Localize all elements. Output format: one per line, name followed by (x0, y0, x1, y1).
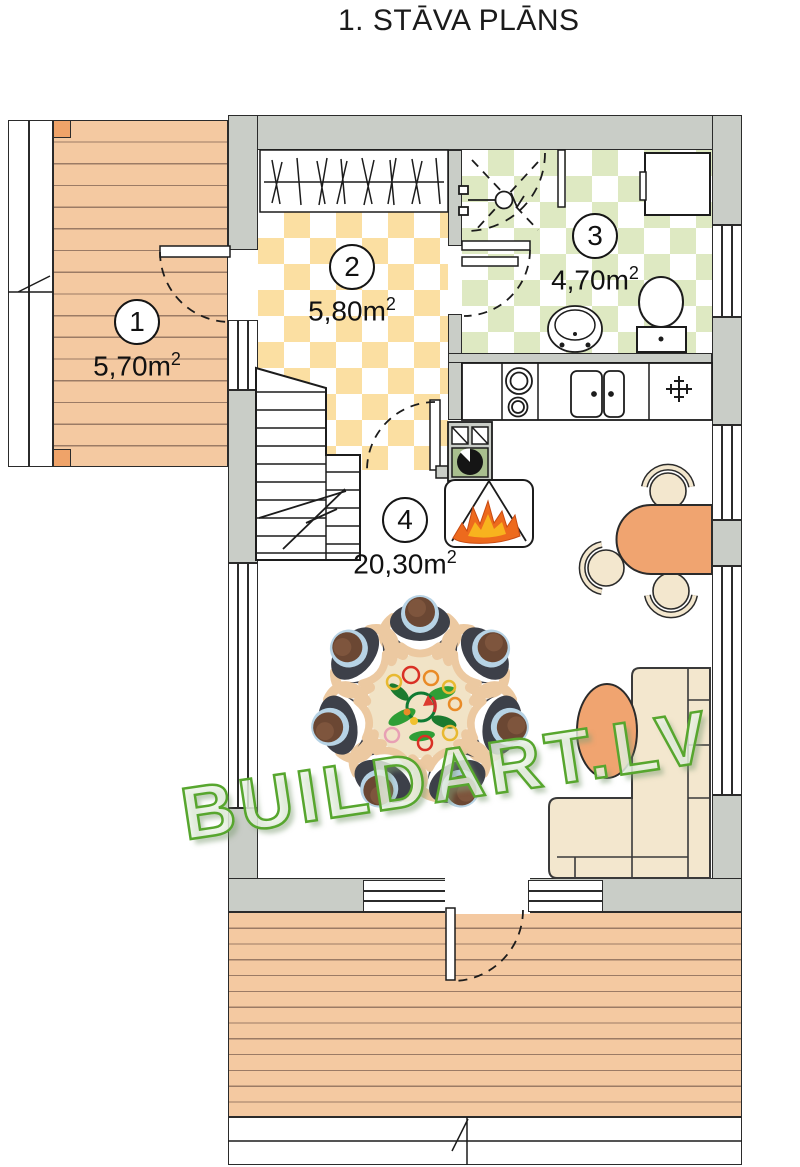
room-label-2: 2 5,80m2 (282, 244, 422, 327)
dining-table (617, 505, 713, 574)
room-area-label: 20,30m2 (335, 547, 475, 580)
room-number-badge: 2 (329, 244, 375, 290)
room-number-badge: 4 (382, 497, 428, 543)
wardrobe-icon (260, 150, 448, 212)
floor-plan: 1. STĀVA PLĀNS (0, 0, 800, 1167)
room-area-label: 4,70m2 (525, 263, 665, 296)
room-area-label: 5,80m2 (282, 294, 422, 327)
door-hall-living (367, 400, 440, 470)
washing-machine-icon (640, 153, 710, 215)
kitchen-counter (462, 363, 712, 420)
door-terrace-bottom (446, 908, 523, 981)
room-label-4: 4 20,30m2 (335, 497, 475, 580)
step-marker-bottom (228, 1117, 742, 1165)
door-swing-arc (367, 402, 435, 470)
kitchen-sink-icon (571, 371, 624, 417)
plan-linework (0, 0, 800, 1167)
room-area-label: 5,70m2 (67, 349, 207, 382)
room-label-1: 1 5,70m2 (67, 299, 207, 382)
dining-set (582, 467, 712, 615)
chair (647, 573, 694, 615)
room-number-badge: 3 (572, 213, 618, 259)
room-number-badge: 1 (114, 299, 160, 345)
washbasin-icon (548, 306, 602, 352)
door-bathroom (462, 241, 530, 316)
door-swing-arc (452, 910, 523, 981)
step-marker-left (8, 276, 53, 292)
chair (644, 467, 691, 509)
room-label-3: 3 4,70m2 (525, 213, 665, 296)
